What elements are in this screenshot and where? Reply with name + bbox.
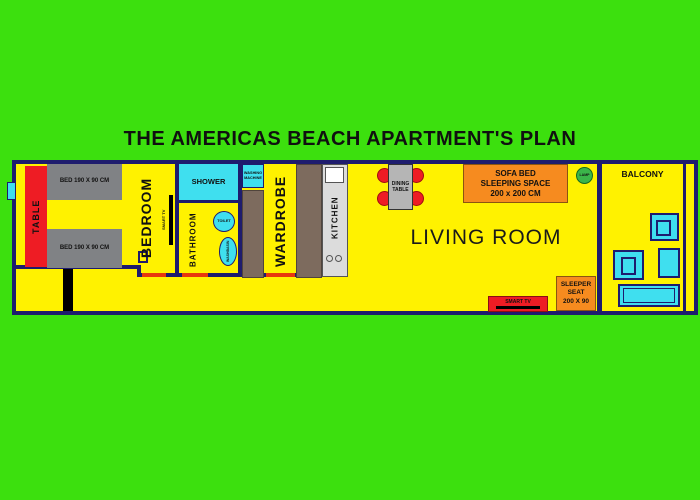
- wardrobe-cabinet-left: [242, 190, 264, 278]
- wardrobe-cabinet-right: [296, 164, 322, 278]
- room-label-balcony: BALCONY: [602, 169, 683, 179]
- stove-burner: [335, 255, 342, 262]
- bed-top: BED 190 X 90 CM: [47, 164, 122, 200]
- dining-table-label-2: TABLE: [392, 187, 408, 193]
- balcony-armchair: [613, 250, 644, 280]
- washing-machine-label-2: MACHINE: [244, 176, 262, 181]
- balcony-armchair: [650, 213, 679, 241]
- sofa-bed-label-3: 200 x 200 CM: [490, 189, 540, 199]
- smart-tv-living-screen: [496, 306, 540, 309]
- kitchen-counter: KITCHEN: [322, 164, 348, 277]
- lamp: LAMP: [576, 167, 593, 184]
- dining-table: DINING TABLE: [388, 164, 413, 210]
- smart-tv-living: SMART TV: [488, 296, 548, 312]
- sleeper-seat: SLEEPER SEAT 200 X 90: [556, 276, 596, 311]
- stove-burner: [326, 255, 333, 262]
- wall-living-balcony: [597, 164, 602, 311]
- sofa-bed-label-2: SLEEPING SPACE: [481, 179, 551, 189]
- washing-machine: WASHING MACHINE: [242, 164, 264, 188]
- sleeper-seat-label-2: SEAT: [568, 289, 585, 297]
- entrance-door: [63, 269, 73, 311]
- balcony-side-table: [658, 248, 680, 278]
- shower: SHOWER: [179, 164, 238, 203]
- balcony-armchair-seat: [621, 257, 636, 275]
- room-label-wardrobe: WARDROBE: [264, 166, 296, 276]
- balcony-bench-inner: [623, 288, 675, 303]
- smart-tv-bedroom-label: SMART TV: [159, 194, 168, 246]
- sofa-bed: SOFA BED SLEEPING SPACE 200 x 200 CM: [463, 164, 568, 203]
- sofa-bed-label-1: SOFA BED: [495, 169, 536, 179]
- balcony-armchair-seat: [656, 220, 671, 236]
- smart-tv-bedroom: [169, 195, 173, 245]
- sleeper-seat-label-3: 200 X 90: [563, 298, 589, 306]
- kitchen-sink: [325, 167, 344, 183]
- floor-plan: TABLE BED 190 X 90 CM BED 190 X 90 CM BE…: [12, 160, 698, 315]
- page-title: THE AMERICAS BEACH APARTMENT'S PLAN: [0, 128, 700, 151]
- left-wall-window: [7, 182, 16, 200]
- smart-tv-living-label: SMART TV: [505, 299, 531, 305]
- balcony-bench: [618, 284, 680, 307]
- room-label-bathroom: BATHROOM: [183, 206, 203, 274]
- balcony-railing-wall: [683, 164, 686, 311]
- bedroom-door-opening: [142, 273, 166, 277]
- bed-bottom: BED 190 X 90 CM: [47, 229, 122, 268]
- table: TABLE: [25, 166, 47, 267]
- room-label-kitchen: KITCHEN: [323, 189, 347, 247]
- room-label-living-room: LIVING ROOM: [391, 226, 581, 250]
- washbasin: WASHBASIN: [219, 237, 237, 266]
- sleeper-seat-label-1: SLEEPER: [561, 281, 591, 289]
- toilet: TOILET: [213, 211, 235, 232]
